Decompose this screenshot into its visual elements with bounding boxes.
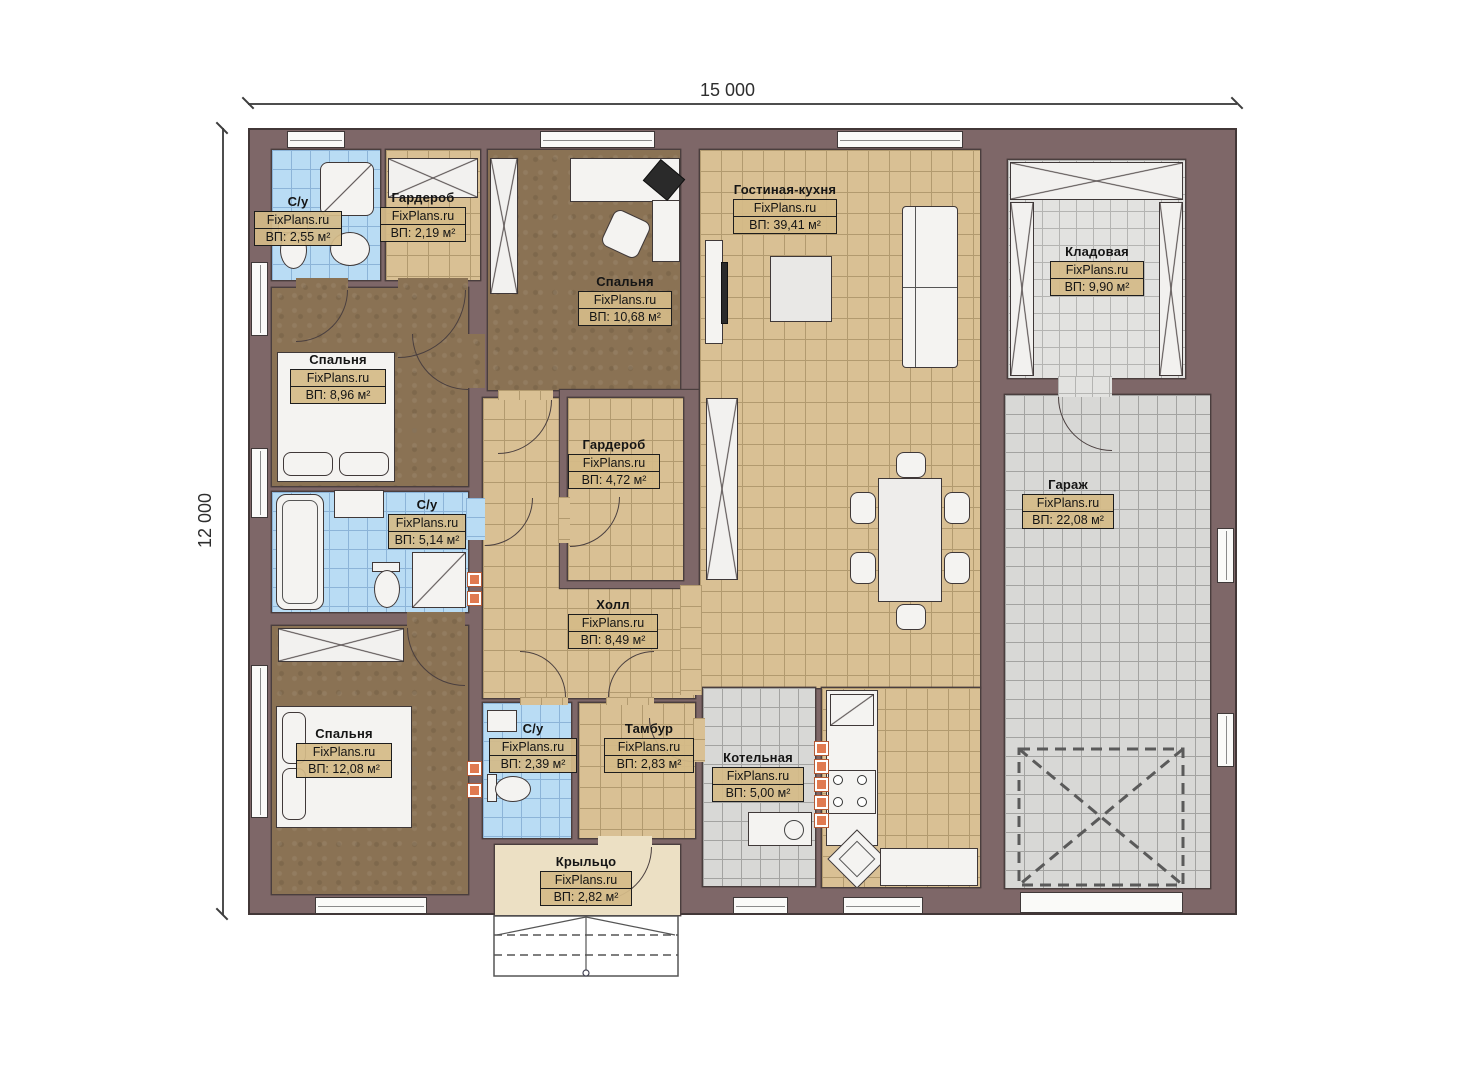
door-opening: [407, 612, 465, 628]
room-label-bedroom-1: Спальня FixPlans.ru ВП: 10,68 м²: [578, 274, 672, 326]
room-name: Гардероб: [568, 437, 660, 452]
room-name: С/у: [489, 721, 577, 736]
door-opening: [693, 718, 705, 762]
shower-cabin: [412, 552, 466, 608]
dining-table: [878, 478, 942, 602]
room-name: Котельная: [712, 750, 804, 765]
kitchen-counter-2: [880, 848, 978, 886]
room-area: ВП: 12,08 м²: [297, 761, 391, 777]
storage-shelf: [1159, 202, 1183, 376]
vent-marker: [468, 784, 481, 797]
coffee-table: [770, 256, 832, 322]
dining-chair: [850, 552, 876, 584]
window: [251, 665, 268, 818]
dining-chair: [896, 452, 926, 478]
room-area: ВП: 8,49 м²: [569, 632, 657, 648]
room-area: ВП: 2,83 м²: [605, 756, 693, 772]
watermark: FixPlans.ru: [734, 200, 836, 217]
room-label-hall: Холл FixPlans.ru ВП: 8,49 м²: [568, 597, 658, 649]
door-opening: [296, 278, 348, 290]
window: [315, 897, 427, 914]
watermark: FixPlans.ru: [579, 292, 671, 309]
vent-marker: [815, 796, 828, 809]
watermark: FixPlans.ru: [713, 768, 803, 785]
window: [251, 448, 268, 518]
door-opening: [468, 334, 485, 388]
room-area: ВП: 2,19 м²: [381, 225, 465, 241]
room-name: Спальня: [296, 726, 392, 741]
watermark: FixPlans.ru: [255, 212, 341, 229]
room-name: С/у: [254, 194, 342, 209]
desk-return: [652, 200, 680, 262]
watermark: FixPlans.ru: [490, 739, 576, 756]
vent-marker: [815, 814, 828, 827]
window: [733, 897, 788, 914]
watermark: FixPlans.ru: [297, 744, 391, 761]
watermark: FixPlans.ru: [381, 208, 465, 225]
wardrobe-cabinet: [490, 158, 518, 294]
pillow: [339, 452, 389, 476]
room-label-bathroom-1: С/у FixPlans.ru ВП: 2,55 м²: [254, 194, 342, 246]
room-area: ВП: 39,41 м²: [734, 217, 836, 233]
watermark: FixPlans.ru: [569, 455, 659, 472]
window: [540, 131, 655, 148]
vent-marker: [468, 762, 481, 775]
room-area: ВП: 5,00 м²: [713, 785, 803, 801]
vent-marker: [468, 573, 481, 586]
dimension-width-label: 15 000: [700, 80, 755, 101]
watermark: FixPlans.ru: [291, 370, 385, 387]
room-area: ВП: 4,72 м²: [569, 472, 659, 488]
dining-chair: [944, 552, 970, 584]
window: [837, 131, 963, 148]
room-area: ВП: 2,82 м²: [541, 889, 631, 905]
room-label-bathroom-2: С/у FixPlans.ru ВП: 5,14 м²: [388, 497, 466, 549]
room-area: ВП: 10,68 м²: [579, 309, 671, 325]
room-name: Гараж: [1022, 477, 1114, 492]
stove: [828, 770, 876, 814]
room-label-porch: Крыльцо FixPlans.ru ВП: 2,82 м²: [540, 854, 632, 906]
door-opening: [558, 497, 570, 543]
room-name: Тамбур: [604, 721, 694, 736]
watermark: FixPlans.ru: [1023, 495, 1113, 512]
door-opening: [498, 390, 553, 400]
dining-chair: [896, 604, 926, 630]
front-door-opening: [598, 836, 652, 847]
dimension-line-left: [222, 128, 224, 915]
watermark: FixPlans.ru: [541, 872, 631, 889]
room-label-bedroom-3: Спальня FixPlans.ru ВП: 12,08 м²: [296, 726, 392, 778]
room-name: Спальня: [290, 352, 386, 367]
wardrobe-cabinet: [278, 628, 404, 662]
room-label-storage: Кладовая FixPlans.ru ВП: 9,90 м²: [1050, 244, 1144, 296]
room-name: Гостиная-кухня: [733, 182, 837, 197]
room-name: Холл: [568, 597, 658, 612]
door-opening: [520, 697, 568, 705]
room-label-garage: Гараж FixPlans.ru ВП: 22,08 м²: [1022, 477, 1114, 529]
watermark: FixPlans.ru: [389, 515, 465, 532]
dining-chair: [850, 492, 876, 524]
room-area: ВП: 8,96 м²: [291, 387, 385, 403]
storage-shelf: [1010, 202, 1034, 376]
window: [1217, 713, 1234, 767]
window: [251, 262, 268, 336]
boiler-appliance: [748, 812, 812, 846]
room-label-wardrobe-1: Гардероб FixPlans.ru ВП: 2,19 м²: [380, 190, 466, 242]
room-label-bedroom-2: Спальня FixPlans.ru ВП: 8,96 м²: [290, 352, 386, 404]
wardrobe-cabinet: [706, 398, 738, 580]
room-area: ВП: 5,14 м²: [389, 532, 465, 548]
sofa: [902, 206, 958, 368]
window: [287, 131, 345, 148]
room-area: ВП: 2,55 м²: [255, 229, 341, 245]
tv-screen: [721, 262, 728, 324]
storage-shelf: [1010, 162, 1183, 200]
room-label-living-kitchen: Гостиная-кухня FixPlans.ru ВП: 39,41 м²: [733, 182, 837, 234]
parking-marking: [1016, 746, 1186, 888]
door-opening: [466, 498, 485, 540]
dimension-line-top: [248, 103, 1237, 105]
room-label-bathroom-3: С/у FixPlans.ru ВП: 2,39 м²: [489, 721, 577, 773]
door-opening: [398, 278, 468, 290]
room-area: ВП: 22,08 м²: [1023, 512, 1113, 528]
watermark: FixPlans.ru: [569, 615, 657, 632]
dimension-height-label: 12 000: [195, 493, 216, 548]
room-label-wardrobe-2: Гардероб FixPlans.ru ВП: 4,72 м²: [568, 437, 660, 489]
room-wardrobe-2-floor: [568, 398, 683, 580]
room-area: ВП: 2,39 м²: [490, 756, 576, 772]
vent-marker: [468, 592, 481, 605]
toilet: [374, 570, 400, 608]
room-name: Крыльцо: [540, 854, 632, 869]
room-name: Гардероб: [380, 190, 466, 205]
vent-marker: [815, 778, 828, 791]
pillow: [283, 452, 333, 476]
kitchen-sink: [830, 694, 874, 726]
vent-marker: [815, 760, 828, 773]
door-opening: [1058, 376, 1112, 397]
room-area: ВП: 9,90 м²: [1051, 279, 1143, 295]
floor-plan-canvas: 15 000 12 000: [0, 0, 1473, 1080]
room-label-tambour: Тамбур FixPlans.ru ВП: 2,83 м²: [604, 721, 694, 773]
room-name: С/у: [388, 497, 466, 512]
door-opening: [680, 585, 702, 695]
room-name: Спальня: [578, 274, 672, 289]
watermark: FixPlans.ru: [1051, 262, 1143, 279]
window: [1217, 528, 1234, 583]
sink: [334, 490, 384, 518]
toilet: [495, 776, 531, 802]
porch-steps: [493, 915, 679, 977]
room-label-boiler: Котельная FixPlans.ru ВП: 5,00 м²: [712, 750, 804, 802]
watermark: FixPlans.ru: [605, 739, 693, 756]
vent-marker: [815, 742, 828, 755]
garage-door: [1020, 892, 1183, 913]
door-opening: [606, 697, 654, 705]
dining-chair: [944, 492, 970, 524]
window: [843, 897, 923, 914]
bathtub: [276, 494, 324, 610]
room-name: Кладовая: [1050, 244, 1144, 259]
